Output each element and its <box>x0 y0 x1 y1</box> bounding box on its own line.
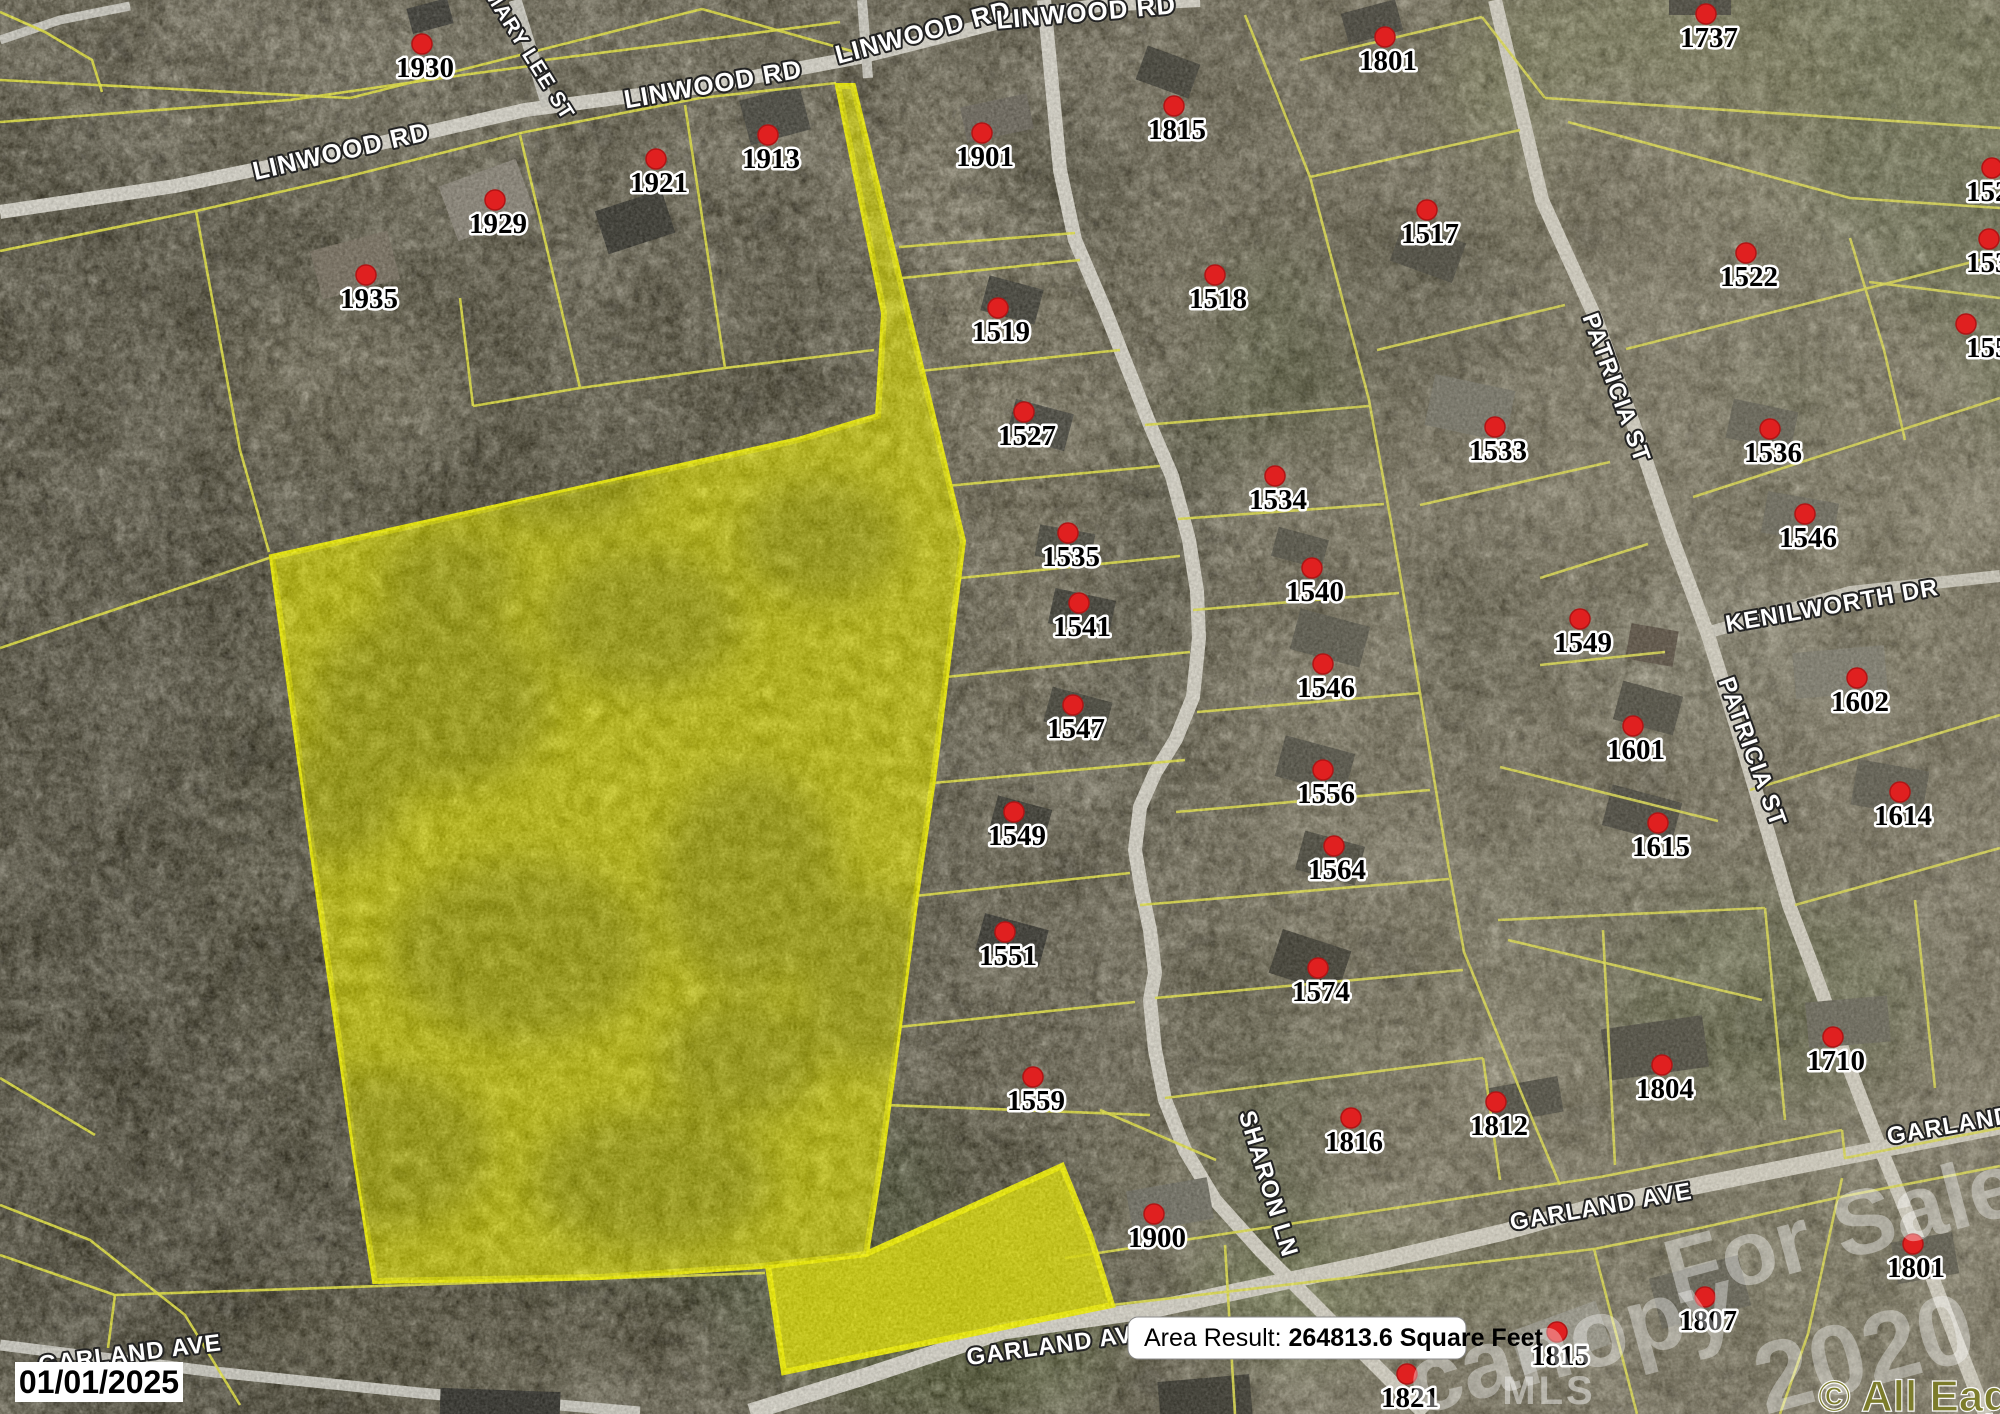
svg-text:1549: 1549 <box>1554 627 1612 659</box>
svg-text:152: 152 <box>1966 176 2000 208</box>
svg-text:1555: 1555 <box>1966 332 2000 364</box>
svg-text:1804: 1804 <box>1636 1073 1694 1105</box>
svg-text:1527: 1527 <box>998 420 1056 452</box>
svg-text:1536: 1536 <box>1744 437 1802 469</box>
svg-text:1533: 1533 <box>1469 435 1527 467</box>
svg-text:1900: 1900 <box>1128 1222 1186 1254</box>
svg-text:1551: 1551 <box>979 940 1037 972</box>
svg-text:153: 153 <box>1966 247 2000 279</box>
svg-text:1913: 1913 <box>742 143 800 175</box>
svg-text:1602: 1602 <box>1831 686 1889 718</box>
svg-text:© All Eagle: © All Eagle <box>1818 1372 2000 1414</box>
svg-text:1935: 1935 <box>340 283 398 315</box>
svg-text:1546: 1546 <box>1779 522 1837 554</box>
svg-text:1519: 1519 <box>972 316 1030 348</box>
svg-text:1522: 1522 <box>1720 261 1778 293</box>
svg-text:1615: 1615 <box>1632 831 1690 863</box>
svg-text:Area Result: 264813.6 Square F: Area Result: 264813.6 Square Feet <box>1144 1324 1544 1352</box>
svg-text:1816: 1816 <box>1325 1126 1383 1158</box>
svg-text:1929: 1929 <box>469 208 527 240</box>
svg-text:MLS: MLS <box>1502 1369 1595 1413</box>
svg-text:1812: 1812 <box>1470 1110 1528 1142</box>
svg-text:1541: 1541 <box>1053 611 1111 643</box>
svg-text:1815: 1815 <box>1148 114 1206 146</box>
svg-text:1737: 1737 <box>1680 22 1738 54</box>
svg-text:1546: 1546 <box>1297 672 1355 704</box>
svg-text:01/01/2025: 01/01/2025 <box>19 1364 179 1400</box>
svg-text:1534: 1534 <box>1249 484 1307 516</box>
svg-text:1930: 1930 <box>396 52 454 84</box>
svg-text:1549: 1549 <box>988 820 1046 852</box>
svg-text:1559: 1559 <box>1007 1085 1065 1117</box>
svg-text:1556: 1556 <box>1297 778 1355 810</box>
svg-text:1921: 1921 <box>630 167 688 199</box>
svg-text:1614: 1614 <box>1874 800 1932 832</box>
svg-text:1540: 1540 <box>1286 576 1344 608</box>
svg-text:1601: 1601 <box>1607 734 1665 766</box>
svg-text:1564: 1564 <box>1308 854 1366 886</box>
svg-text:1517: 1517 <box>1401 218 1459 250</box>
svg-text:1547: 1547 <box>1047 713 1105 745</box>
svg-text:1574: 1574 <box>1292 976 1350 1008</box>
svg-text:1901: 1901 <box>956 141 1014 173</box>
svg-text:1710: 1710 <box>1807 1045 1865 1077</box>
svg-text:1801: 1801 <box>1359 45 1417 77</box>
svg-text:1535: 1535 <box>1042 541 1100 573</box>
svg-text:1518: 1518 <box>1189 283 1247 315</box>
